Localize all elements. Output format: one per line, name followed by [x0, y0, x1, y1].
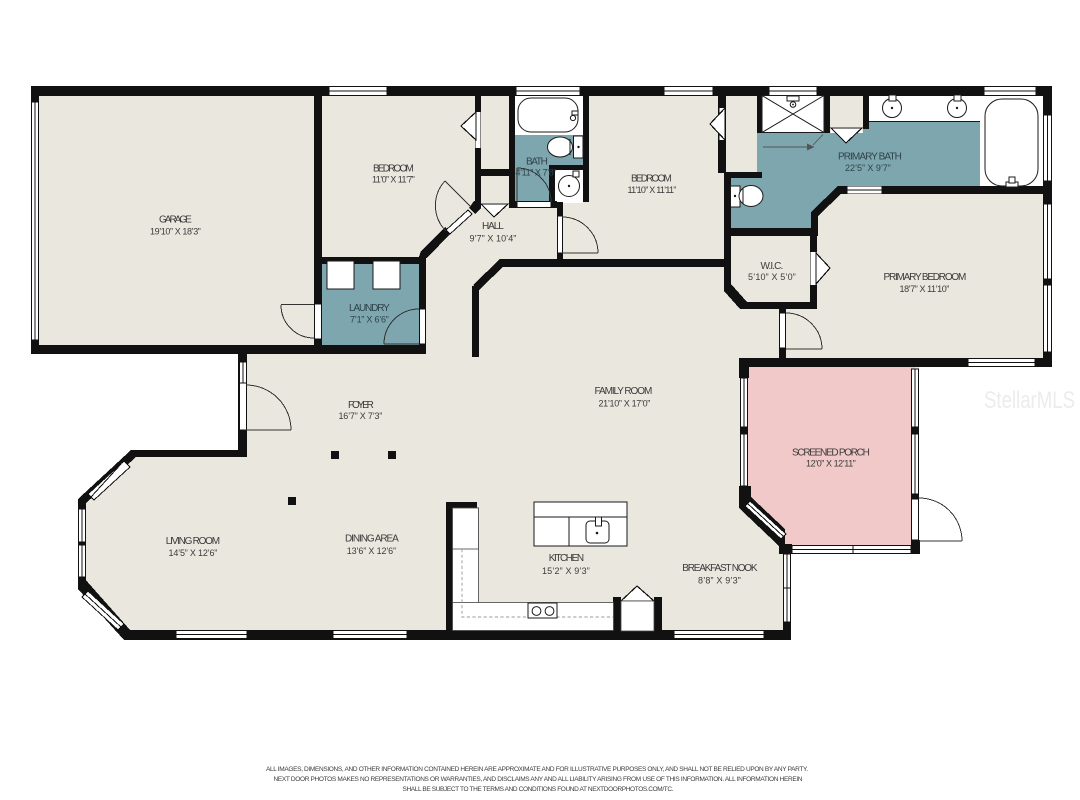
svg-text:ALL IMAGES, DIMENSIONS, AND OT: ALL IMAGES, DIMENSIONS, AND OTHER INFORM…: [266, 766, 808, 773]
svg-text:18’7” X 11’10”: 18’7” X 11’10”: [900, 284, 950, 294]
svg-text:FOYER: FOYER: [348, 400, 374, 411]
svg-text:21’10” X 17’0”: 21’10” X 17’0”: [599, 399, 651, 409]
svg-text:HALL: HALL: [482, 221, 504, 232]
svg-text:W.I.C.: W.I.C.: [761, 261, 784, 272]
svg-text:19’10” X 18’3”: 19’10” X 18’3”: [150, 227, 201, 237]
svg-text:GARAGE: GARAGE: [159, 215, 192, 226]
svg-text:LIVING ROOM: LIVING ROOM: [166, 536, 221, 547]
svg-text:FAMILY ROOM: FAMILY ROOM: [595, 386, 653, 397]
svg-text:SCREENED PORCH: SCREENED PORCH: [792, 448, 870, 459]
svg-text:22’5” X 9’7”: 22’5” X 9’7”: [845, 163, 891, 173]
svg-text:11’0” X 11’7”: 11’0” X 11’7”: [372, 175, 415, 185]
svg-text:BREAKFAST NOOK: BREAKFAST NOOK: [682, 563, 758, 574]
svg-text:NEXT DOOR PHOTOS MAKES NO REPR: NEXT DOOR PHOTOS MAKES NO REPRESENTATION…: [274, 776, 803, 783]
svg-text:12’0” X 12’11”: 12’0” X 12’11”: [806, 459, 856, 469]
svg-text:14’5” X 12’6”: 14’5” X 12’6”: [169, 548, 218, 558]
svg-text:PRIMARY BEDROOM: PRIMARY BEDROOM: [884, 272, 967, 283]
svg-text:7’1” X 6’6”: 7’1” X 6’6”: [350, 315, 389, 325]
svg-text:StellarMLS: StellarMLS: [984, 387, 1075, 414]
svg-text:4’11” X 7’8”: 4’11” X 7’8”: [516, 168, 557, 178]
svg-text:11’10” X 11’11”: 11’10” X 11’11”: [628, 185, 677, 195]
svg-text:9’7” X 10’4”: 9’7” X 10’4”: [470, 234, 517, 244]
svg-text:PRIMARY BATH: PRIMARY BATH: [838, 152, 902, 163]
svg-text:DINING AREA: DINING AREA: [345, 534, 399, 545]
svg-text:13’6” X 12’6”: 13’6” X 12’6”: [347, 546, 397, 556]
svg-text:BATH: BATH: [526, 157, 548, 168]
svg-text:5’10” X 5’0”: 5’10” X 5’0”: [748, 272, 796, 282]
svg-text:15’2” X 9’3”: 15’2” X 9’3”: [542, 566, 590, 576]
svg-text:KITCHEN: KITCHEN: [549, 553, 585, 564]
svg-text:16’7” X 7’3”: 16’7” X 7’3”: [339, 411, 383, 421]
svg-text:LAUNDRY: LAUNDRY: [349, 303, 390, 314]
svg-text:BEDROOM: BEDROOM: [631, 174, 672, 185]
svg-text:8’8” X 9’3”: 8’8” X 9’3”: [698, 576, 741, 586]
svg-text:SHALL BE SUBJECT TO THE TERMS: SHALL BE SUBJECT TO THE TERMS AND CONDIT…: [403, 786, 674, 793]
svg-text:BEDROOM: BEDROOM: [373, 164, 414, 175]
